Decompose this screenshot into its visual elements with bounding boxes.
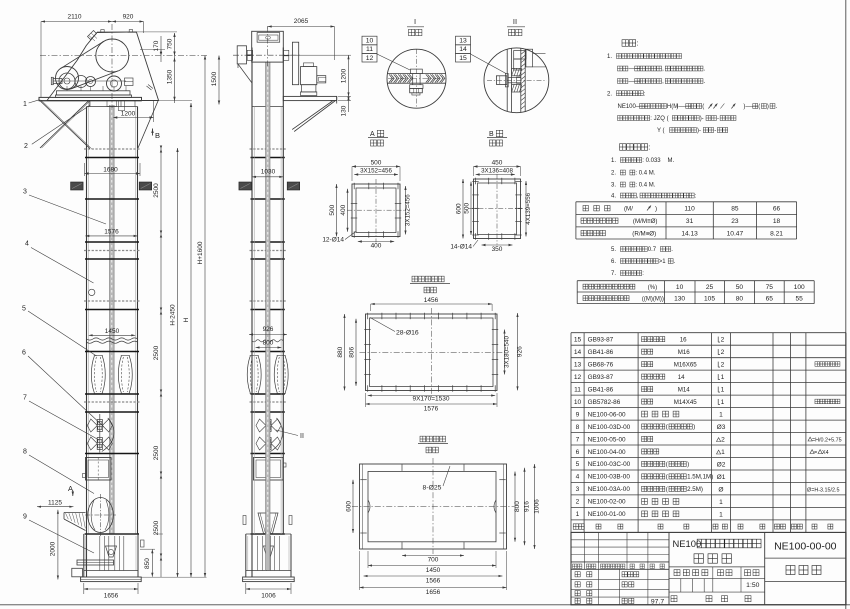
svg-text:1566: 1566 <box>426 578 441 585</box>
svg-text:800: 800 <box>514 501 521 512</box>
svg-text:7: 7 <box>23 395 27 402</box>
svg-text:600: 600 <box>345 501 352 512</box>
svg-text:3X152=456: 3X152=456 <box>360 167 392 174</box>
svg-text:2500: 2500 <box>153 183 160 198</box>
svg-text:): ) <box>693 424 695 431</box>
svg-text:(%): (%) <box>648 285 657 291</box>
svg-text:97.7: 97.7 <box>651 598 664 605</box>
svg-text:1576: 1576 <box>104 229 119 236</box>
svg-text:2500: 2500 <box>153 445 160 460</box>
svg-text:14: 14 <box>678 374 685 381</box>
svg-text:4.: 4. <box>611 194 616 200</box>
svg-text:H-2450: H-2450 <box>170 304 177 326</box>
svg-text:2500: 2500 <box>153 345 160 360</box>
svg-text:23: 23 <box>731 218 739 225</box>
svg-text:6: 6 <box>22 350 26 357</box>
svg-text:)-: )- <box>697 128 701 134</box>
svg-text:1006: 1006 <box>261 593 276 600</box>
svg-text:130: 130 <box>674 296 685 303</box>
svg-text:——: —— <box>628 67 640 73</box>
svg-text:GB93-87: GB93-87 <box>588 336 614 343</box>
svg-text:700: 700 <box>428 557 439 564</box>
svg-text:2: 2 <box>721 337 725 344</box>
svg-text:5: 5 <box>22 306 26 313</box>
svg-text:II: II <box>513 17 517 26</box>
svg-text:(M/: (M/ <box>624 205 633 212</box>
svg-text:GB68-76: GB68-76 <box>588 361 614 368</box>
svg-text:=H/0.2+5.75: =H/0.2+5.75 <box>812 437 842 443</box>
svg-text:GB41-86: GB41-86 <box>588 349 614 356</box>
svg-text:916: 916 <box>523 501 530 512</box>
svg-text:806: 806 <box>348 346 355 357</box>
svg-text:18: 18 <box>773 218 781 225</box>
svg-text:14: 14 <box>574 349 582 356</box>
svg-text:12: 12 <box>574 374 582 381</box>
svg-text:1656: 1656 <box>104 593 119 600</box>
svg-text:1006: 1006 <box>533 499 540 514</box>
svg-text:500: 500 <box>329 204 336 215</box>
svg-text:1.: 1. <box>607 54 612 60</box>
svg-text:110: 110 <box>684 206 695 213</box>
svg-text:1: 1 <box>721 387 725 394</box>
svg-text:): ) <box>767 104 769 110</box>
svg-text:5: 5 <box>576 461 580 468</box>
svg-text:350: 350 <box>492 246 503 253</box>
svg-text:2110: 2110 <box>68 13 82 20</box>
svg-text:4: 4 <box>576 474 580 481</box>
svg-text:B: B <box>155 131 160 140</box>
svg-text:4: 4 <box>25 241 29 248</box>
svg-text:16: 16 <box>680 336 687 343</box>
svg-text:25: 25 <box>706 284 714 291</box>
svg-text:1:50: 1:50 <box>746 582 759 589</box>
svg-text:1: 1 <box>576 511 580 518</box>
svg-text:H+1600: H+1600 <box>197 241 204 264</box>
svg-text:NE100-03D-00: NE100-03D-00 <box>588 424 631 431</box>
svg-text:I: I <box>414 17 416 26</box>
svg-text:: 0.033: : 0.033 <box>642 158 661 164</box>
svg-text:Ø: Ø <box>718 486 723 493</box>
svg-text:6: 6 <box>576 449 580 456</box>
svg-text:105: 105 <box>704 296 715 303</box>
svg-text:M16X65: M16X65 <box>674 361 698 368</box>
svg-text:2: 2 <box>24 143 28 150</box>
svg-text:9: 9 <box>576 411 580 418</box>
svg-text:NE100-03B-00: NE100-03B-00 <box>588 474 631 481</box>
svg-text:2.: 2. <box>607 91 612 97</box>
svg-text:1.: 1. <box>611 158 616 164</box>
svg-text:500: 500 <box>371 159 382 166</box>
svg-text:13: 13 <box>459 38 467 45</box>
svg-text:1500: 1500 <box>211 71 218 86</box>
svg-text:500: 500 <box>463 202 470 213</box>
svg-text:1: 1 <box>721 374 725 381</box>
svg-text:15: 15 <box>459 55 467 62</box>
svg-text:926: 926 <box>516 346 523 357</box>
svg-text:6.: 6. <box>611 259 616 265</box>
svg-text:((M)(M)): ((M)(M)) <box>642 296 664 302</box>
svg-text:4X139=556: 4X139=556 <box>525 192 532 224</box>
svg-text:1.5M,1M): 1.5M,1M) <box>687 474 713 481</box>
svg-text:8: 8 <box>23 449 27 456</box>
svg-text:: JZQ (: : JZQ ( <box>650 116 668 122</box>
svg-text:1680: 1680 <box>103 166 118 173</box>
svg-text:2: 2 <box>576 499 580 506</box>
svg-text:NE100-00-00: NE100-00-00 <box>774 541 837 553</box>
svg-text:3.: 3. <box>611 183 616 189</box>
svg-text:5.: 5. <box>611 247 616 253</box>
svg-text:2: 2 <box>721 349 725 356</box>
svg-text:Ø3: Ø3 <box>717 424 726 431</box>
svg-text:(: ( <box>702 104 704 110</box>
svg-text:8.21: 8.21 <box>770 230 783 237</box>
svg-text:M14: M14 <box>678 386 691 393</box>
svg-text:1350: 1350 <box>167 69 174 84</box>
svg-text:920: 920 <box>123 13 134 20</box>
svg-text:100: 100 <box>794 284 805 291</box>
svg-text:NE100-04-00: NE100-04-00 <box>588 449 626 456</box>
svg-text:X4: X4 <box>822 450 829 456</box>
svg-text:7: 7 <box>576 436 580 443</box>
svg-text:3: 3 <box>23 189 27 196</box>
svg-text:80: 80 <box>736 296 744 303</box>
svg-text:0.7: 0.7 <box>648 247 657 253</box>
svg-text::: : <box>636 39 638 48</box>
svg-text:55: 55 <box>796 296 804 303</box>
svg-text:2500: 2500 <box>153 520 160 535</box>
svg-text:=: = <box>814 450 817 456</box>
svg-text:66: 66 <box>773 206 781 213</box>
svg-text:Ø1: Ø1 <box>717 474 726 481</box>
svg-text:11: 11 <box>574 386 581 393</box>
svg-text:65: 65 <box>766 296 774 303</box>
svg-text:(M/M≡Ø): (M/M≡Ø) <box>633 218 658 225</box>
svg-text:14.13: 14.13 <box>681 230 698 237</box>
svg-text:3: 3 <box>576 486 580 493</box>
svg-text:1656: 1656 <box>426 589 441 596</box>
svg-text:GB41-86: GB41-86 <box>588 386 614 393</box>
svg-text:1450: 1450 <box>105 328 120 335</box>
svg-text:2065: 2065 <box>294 18 309 25</box>
svg-text:2: 2 <box>721 437 725 444</box>
svg-text:14: 14 <box>459 46 467 53</box>
svg-text:2: 2 <box>721 362 725 369</box>
svg-text:Ø=H-3.15/2.5: Ø=H-3.15/2.5 <box>807 487 840 493</box>
svg-text:GB93-87: GB93-87 <box>588 374 614 381</box>
svg-text:1125: 1125 <box>48 500 62 507</box>
svg-text:1: 1 <box>721 399 725 406</box>
svg-text:8: 8 <box>576 424 580 431</box>
svg-text:M.: M. <box>668 158 675 164</box>
svg-text:600: 600 <box>455 203 462 214</box>
svg-text:10.47: 10.47 <box>727 230 744 237</box>
svg-text:A: A <box>370 131 375 138</box>
svg-text:1576: 1576 <box>424 406 439 413</box>
svg-text:12-Ø14: 12-Ø14 <box>322 237 344 244</box>
svg-text:2000: 2000 <box>50 541 57 556</box>
svg-text:130: 130 <box>341 105 348 116</box>
svg-text:800: 800 <box>263 340 274 347</box>
svg-text:1456: 1456 <box>424 297 439 304</box>
svg-text:-: - <box>714 128 716 134</box>
svg-text:-: - <box>717 116 719 122</box>
svg-text:926: 926 <box>263 326 274 333</box>
svg-text:10: 10 <box>574 399 582 406</box>
svg-text:M14X45: M14X45 <box>674 399 698 406</box>
svg-text:3X136=408: 3X136=408 <box>481 167 513 174</box>
svg-text:1: 1 <box>23 101 27 108</box>
svg-text::: : <box>648 143 650 152</box>
svg-text:GB5782-86: GB5782-86 <box>588 399 621 406</box>
svg-text:15: 15 <box>574 336 582 343</box>
svg-text:NE100-03A-00: NE100-03A-00 <box>588 486 631 493</box>
svg-text:11: 11 <box>366 46 373 53</box>
svg-text:3X152=456: 3X152=456 <box>404 194 411 226</box>
svg-text:13: 13 <box>574 361 582 368</box>
svg-text:1: 1 <box>719 412 723 419</box>
svg-text:9: 9 <box>23 514 27 521</box>
svg-text:: 0.4 M.: : 0.4 M. <box>635 171 655 177</box>
svg-text:2.5M): 2.5M) <box>687 486 703 493</box>
svg-text:85: 85 <box>731 206 739 213</box>
svg-text:M16: M16 <box>678 349 691 356</box>
svg-text:): ) <box>687 461 689 468</box>
svg-text:Ø2: Ø2 <box>717 461 726 468</box>
svg-text:75: 75 <box>766 284 774 291</box>
svg-text:750: 750 <box>167 38 174 49</box>
svg-text:10: 10 <box>676 284 684 291</box>
svg-text:450: 450 <box>492 159 503 166</box>
svg-text:880: 880 <box>337 346 344 357</box>
svg-text:1450: 1450 <box>426 567 441 574</box>
svg-text:28-Ø16: 28-Ø16 <box>396 330 419 337</box>
svg-text:400: 400 <box>340 204 347 215</box>
svg-text:——: —— <box>628 79 640 85</box>
svg-text:(: ( <box>758 104 760 110</box>
svg-text:50: 50 <box>736 284 744 291</box>
svg-text:400: 400 <box>371 243 382 250</box>
svg-text:8-Ø25: 8-Ø25 <box>423 485 442 492</box>
svg-text:1200: 1200 <box>341 68 348 83</box>
svg-text:1030: 1030 <box>261 169 276 176</box>
svg-text:NE100——: NE100—— <box>618 104 648 110</box>
svg-text:NE100-02-00: NE100-02-00 <box>588 499 626 506</box>
svg-text:1200: 1200 <box>121 110 136 117</box>
svg-text:: 0.4 M.: : 0.4 M. <box>635 183 655 189</box>
svg-text:NE100-05-00: NE100-05-00 <box>588 436 626 443</box>
svg-text:12: 12 <box>366 55 374 62</box>
svg-text:NE100-01-00: NE100-01-00 <box>588 511 626 518</box>
svg-text:10: 10 <box>366 38 374 45</box>
svg-text:)-: )- <box>700 116 704 122</box>
svg-text:7.: 7. <box>611 271 616 277</box>
svg-text:NE100-06-00: NE100-06-00 <box>588 411 626 418</box>
svg-text:9X170=1530: 9X170=1530 <box>412 396 449 403</box>
svg-text:NE100-03C-00: NE100-03C-00 <box>588 461 631 468</box>
svg-text:Y (: Y ( <box>657 128 665 134</box>
svg-text:II: II <box>300 433 304 440</box>
svg-text:850: 850 <box>144 558 151 569</box>
svg-text:1: 1 <box>719 499 723 506</box>
svg-text:1: 1 <box>721 449 725 456</box>
svg-text:>1: >1 <box>659 259 667 265</box>
svg-text:1: 1 <box>719 511 723 518</box>
svg-text:31: 31 <box>686 218 694 225</box>
svg-text:2.: 2. <box>611 171 616 177</box>
svg-text:3X180=540: 3X180=540 <box>503 336 510 368</box>
svg-text:H: H <box>183 317 190 322</box>
svg-text:(R/M≡Ø): (R/M≡Ø) <box>632 230 656 237</box>
svg-text:B: B <box>489 131 494 138</box>
svg-text:): ) <box>655 205 657 212</box>
svg-text:14-Ø14: 14-Ø14 <box>450 244 472 251</box>
